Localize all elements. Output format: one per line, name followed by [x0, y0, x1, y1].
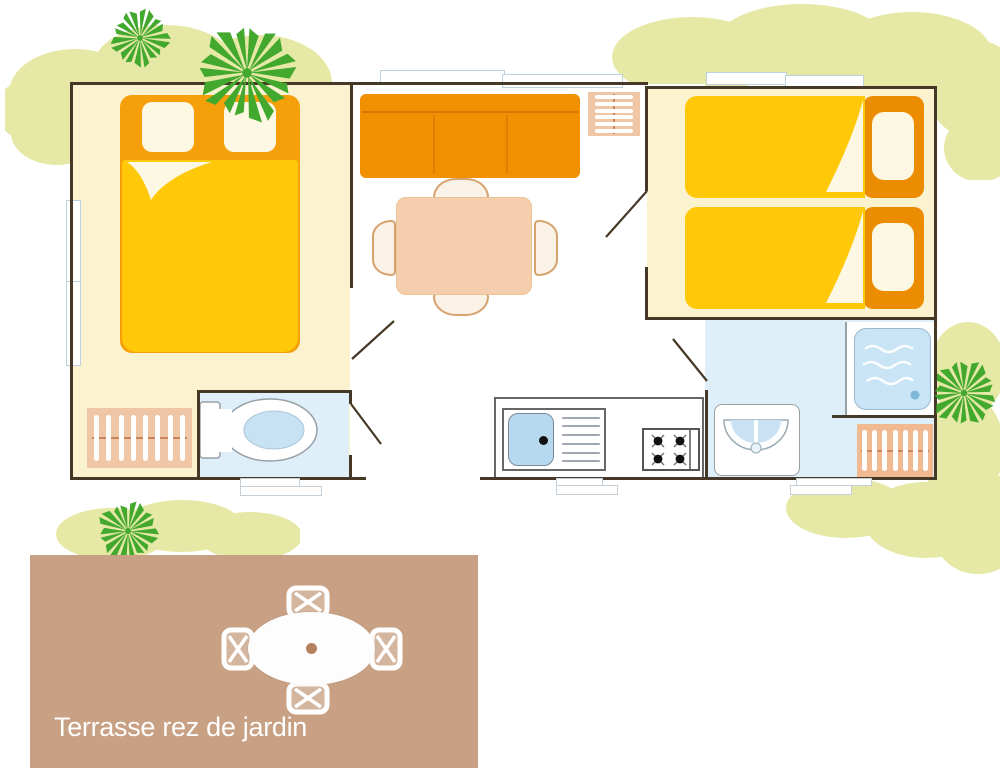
dining-table	[396, 197, 532, 295]
window-living-right	[502, 74, 623, 88]
wall-bedroom1-living	[350, 82, 353, 288]
single-bed1-fold	[822, 98, 865, 196]
tree-top-left-large	[193, 19, 301, 127]
window-left-wall	[66, 200, 81, 366]
wardrobe-bathroom	[857, 424, 933, 477]
kitchen-counter	[494, 397, 704, 477]
step-toilet-lower	[240, 486, 322, 496]
step-kitchen-lower	[556, 485, 618, 495]
sofa	[360, 94, 580, 178]
sofa-seat-divider	[506, 115, 508, 174]
dining-chair-right	[534, 220, 558, 276]
wall-bedroom2-bathroom	[645, 317, 937, 320]
wall-living-bedroom2-lower	[645, 267, 648, 320]
double-bed-pillow-left	[142, 102, 194, 152]
terrace-chair-bottom	[284, 680, 332, 716]
wall-left	[70, 82, 73, 480]
wall-toilet-left	[197, 390, 200, 478]
terrace-table-hole	[306, 643, 317, 654]
bush-bottom-left	[50, 496, 300, 560]
floor-plan-canvas: Terrasse rez de jardin	[0, 0, 1000, 775]
wall-top-right	[645, 86, 937, 89]
shelf-unit	[588, 92, 640, 136]
wall-top-left	[70, 82, 648, 85]
sofa-seat-divider	[433, 115, 435, 174]
tree-top-left-small	[108, 6, 172, 70]
sink-drain	[539, 436, 548, 445]
window-bedroom2-left	[706, 72, 787, 85]
sink-unit	[502, 408, 606, 471]
sofa-backrest-line	[362, 111, 578, 113]
terrace-table	[248, 612, 375, 685]
wall-shower-divider	[832, 415, 935, 418]
wardrobe-hangers	[857, 424, 933, 477]
dining-chair-left	[372, 220, 396, 276]
terrace-label: Terrasse rez de jardin	[54, 712, 307, 743]
toilet	[198, 396, 324, 466]
shower-tray	[845, 322, 935, 417]
stove	[642, 428, 700, 471]
tree-right	[928, 357, 1000, 429]
shower-basin	[854, 328, 931, 410]
single-bed2-fold	[822, 209, 865, 307]
terrace: Terrasse rez de jardin	[30, 555, 478, 768]
double-bed-fold	[124, 160, 216, 202]
step-bathroom-lower	[790, 485, 852, 495]
single-bed2-pillow	[872, 223, 914, 291]
shower-waves	[855, 329, 932, 411]
wall-bottom-left	[70, 477, 366, 480]
wall-toilet-top	[197, 390, 351, 393]
washbasin	[714, 404, 800, 476]
wardrobe-bedroom1	[87, 408, 192, 468]
drainer-lines	[560, 410, 602, 469]
shelf-hangers	[588, 92, 640, 136]
bush-right-upper	[928, 60, 1000, 180]
wall-toilet-right-upper	[349, 390, 352, 404]
wall-living-bedroom2-upper	[645, 88, 648, 191]
wardrobe-hangers	[87, 408, 192, 468]
kitchen-sink	[508, 413, 554, 466]
wall-bathroom-left	[705, 390, 708, 478]
wall-toilet-right-lower	[349, 455, 352, 480]
single-bed1-pillow	[872, 112, 914, 180]
